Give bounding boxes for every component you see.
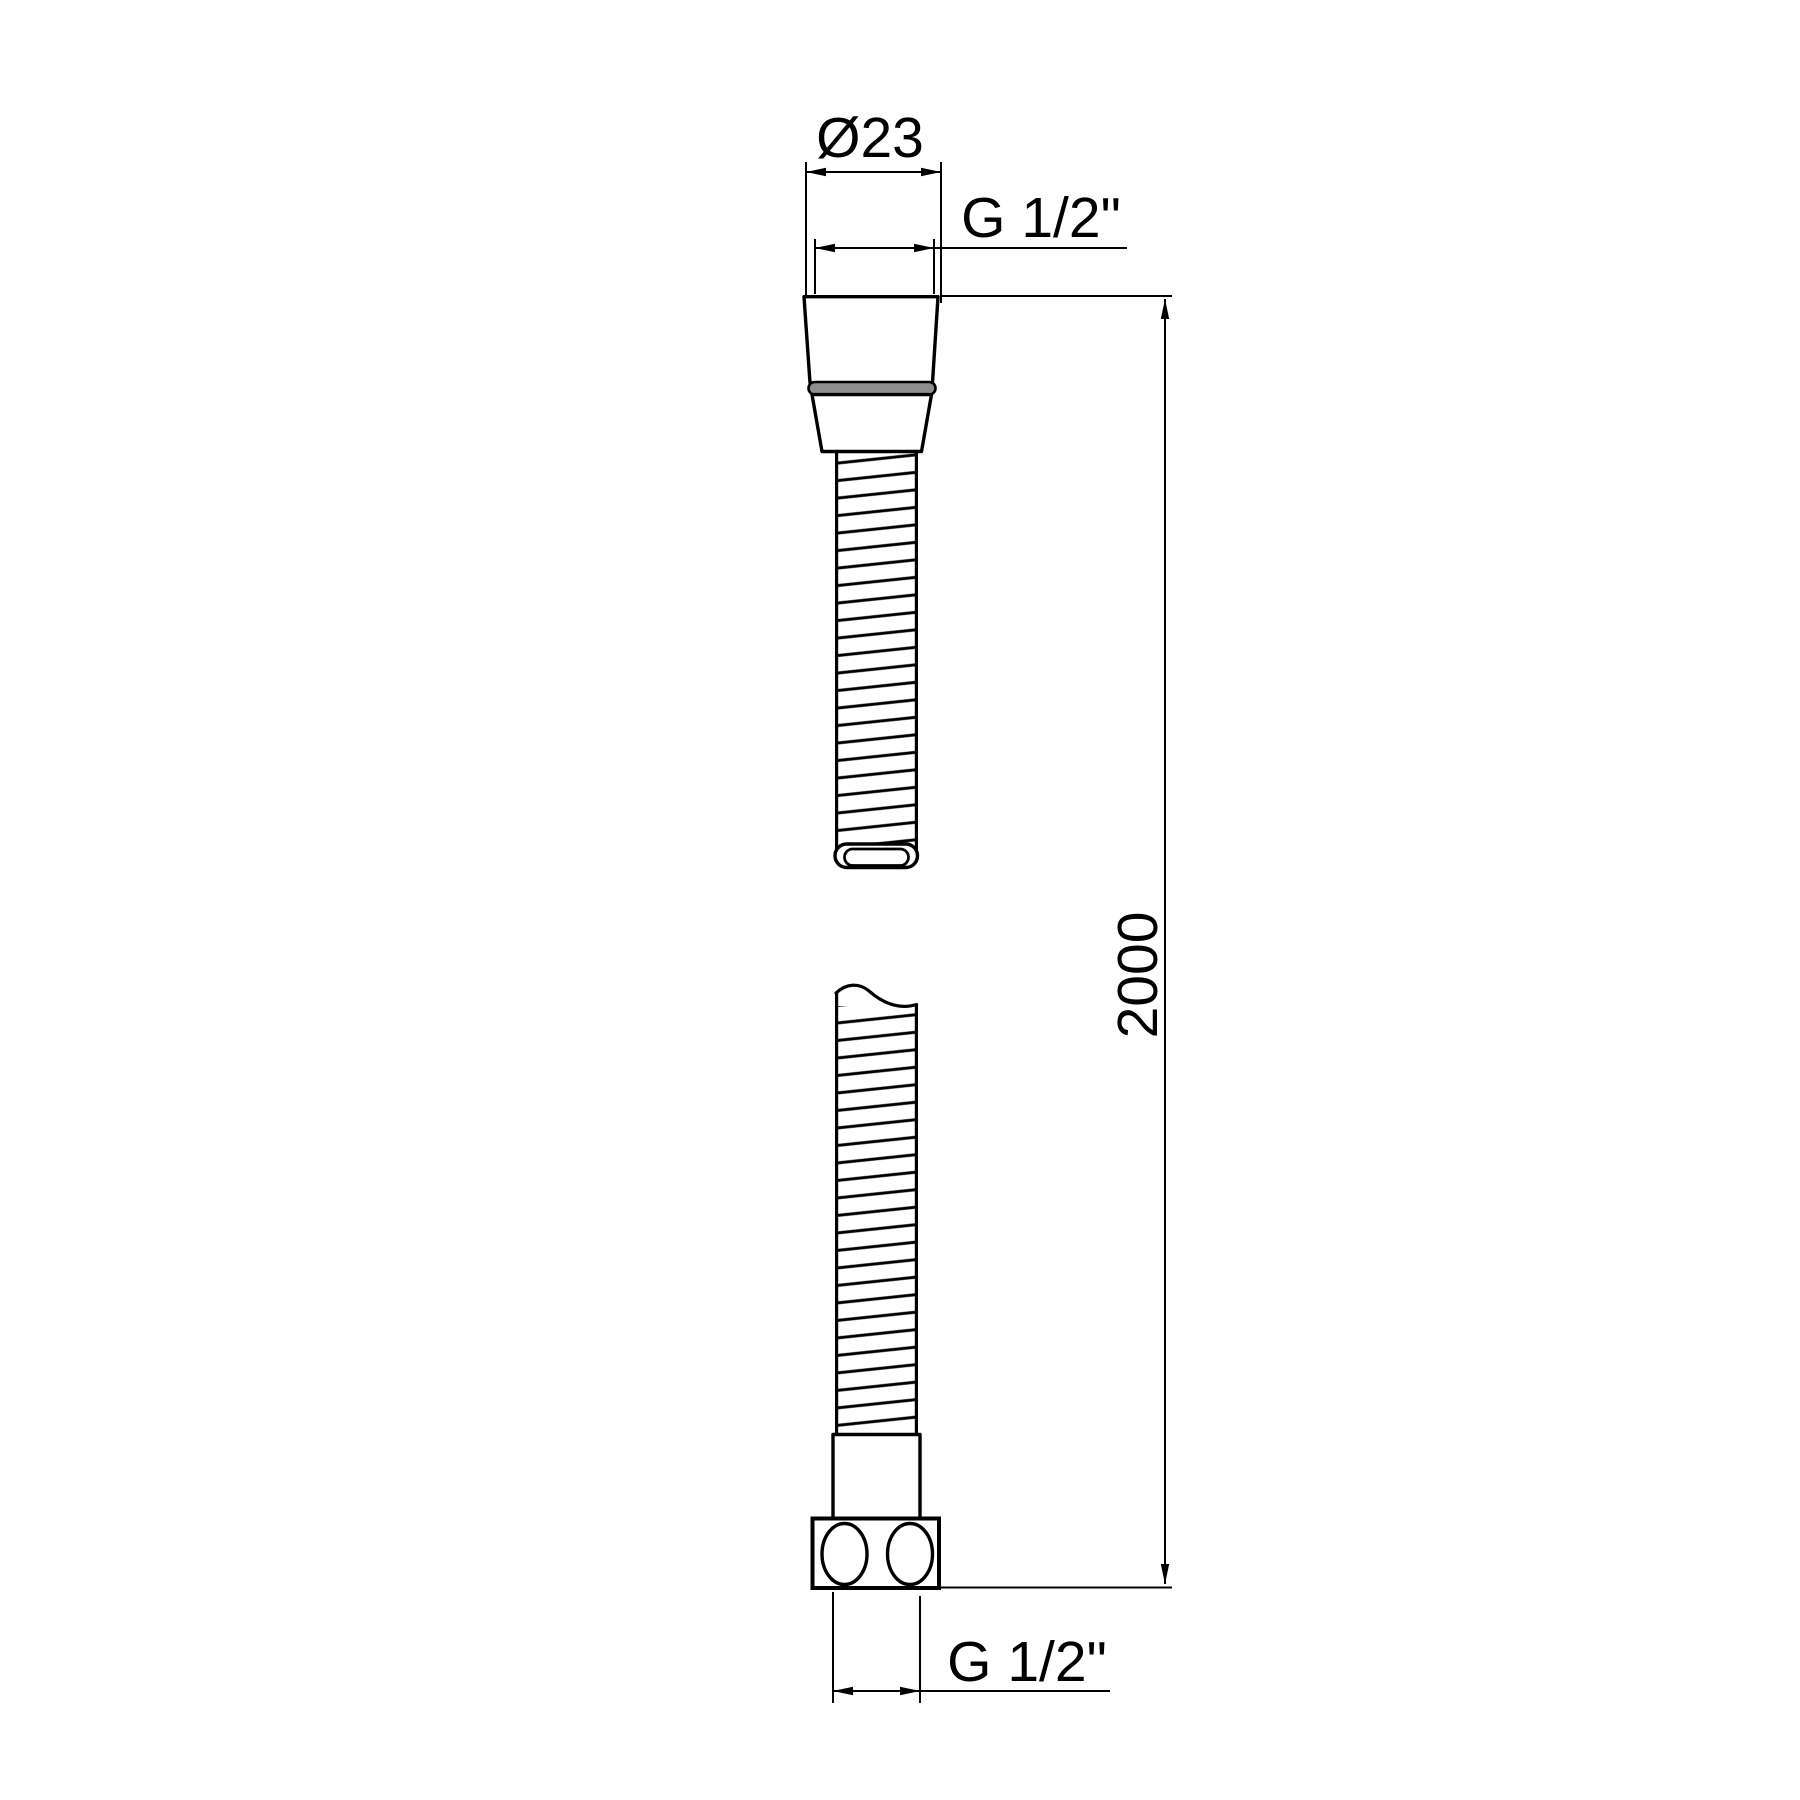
- hose-spiral-ribs: [836, 453, 917, 844]
- nut-flat-left: [822, 1524, 867, 1585]
- arrowhead-up: [1161, 299, 1169, 319]
- bottom-connector-sleeve: [833, 1435, 920, 1519]
- hose-lower-segment: [836, 985, 917, 1436]
- hose-upper-segment: [835, 452, 918, 868]
- length-dimension: 2000: [939, 296, 1172, 1588]
- top-connector-cone-lower: [812, 395, 932, 452]
- arrowhead-left: [815, 244, 835, 252]
- bottom-thread-label: G 1/2": [947, 1630, 1107, 1694]
- nut-flat-right: [888, 1524, 933, 1585]
- arrowhead-down: [1161, 1564, 1169, 1584]
- diameter-label: Ø23: [816, 106, 924, 170]
- top-thread-label: G 1/2": [961, 186, 1121, 250]
- hose-break-end-inner: [845, 849, 909, 866]
- gasket-band: [809, 382, 936, 395]
- arrowhead-right: [914, 244, 934, 252]
- shower-hose-technical-drawing: Ø23 G 1/2" 2000 G 1/2": [0, 0, 1800, 1800]
- bottom-connector: [813, 1435, 940, 1589]
- arrowhead-right: [921, 168, 941, 176]
- arrowhead-right: [900, 1687, 920, 1695]
- top-thread-dimension: G 1/2": [815, 186, 1127, 294]
- hose-break-wavy-edge: [836, 985, 917, 1006]
- arrowhead-left: [833, 1687, 853, 1695]
- top-connector-cone-upper: [804, 297, 938, 383]
- drawing-canvas: Ø23 G 1/2" 2000 G 1/2": [0, 0, 1800, 1800]
- bottom-thread-dimension: G 1/2": [833, 1592, 1110, 1703]
- top-connector: [804, 297, 938, 452]
- diameter-dimension: Ø23: [806, 106, 941, 303]
- length-label: 2000: [1106, 912, 1170, 1039]
- hose-spiral-ribs: [836, 1006, 917, 1435]
